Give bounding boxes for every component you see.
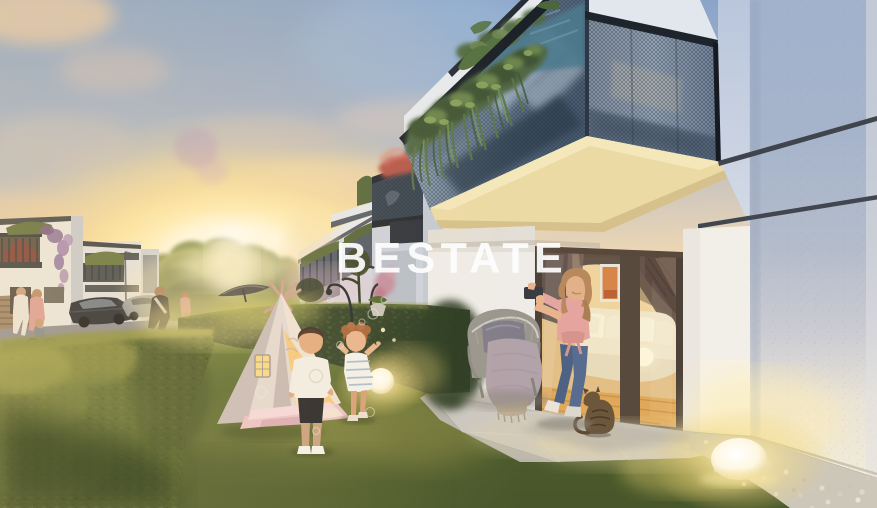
- svg-text:BESTATE: BESTATE: [336, 235, 568, 283]
